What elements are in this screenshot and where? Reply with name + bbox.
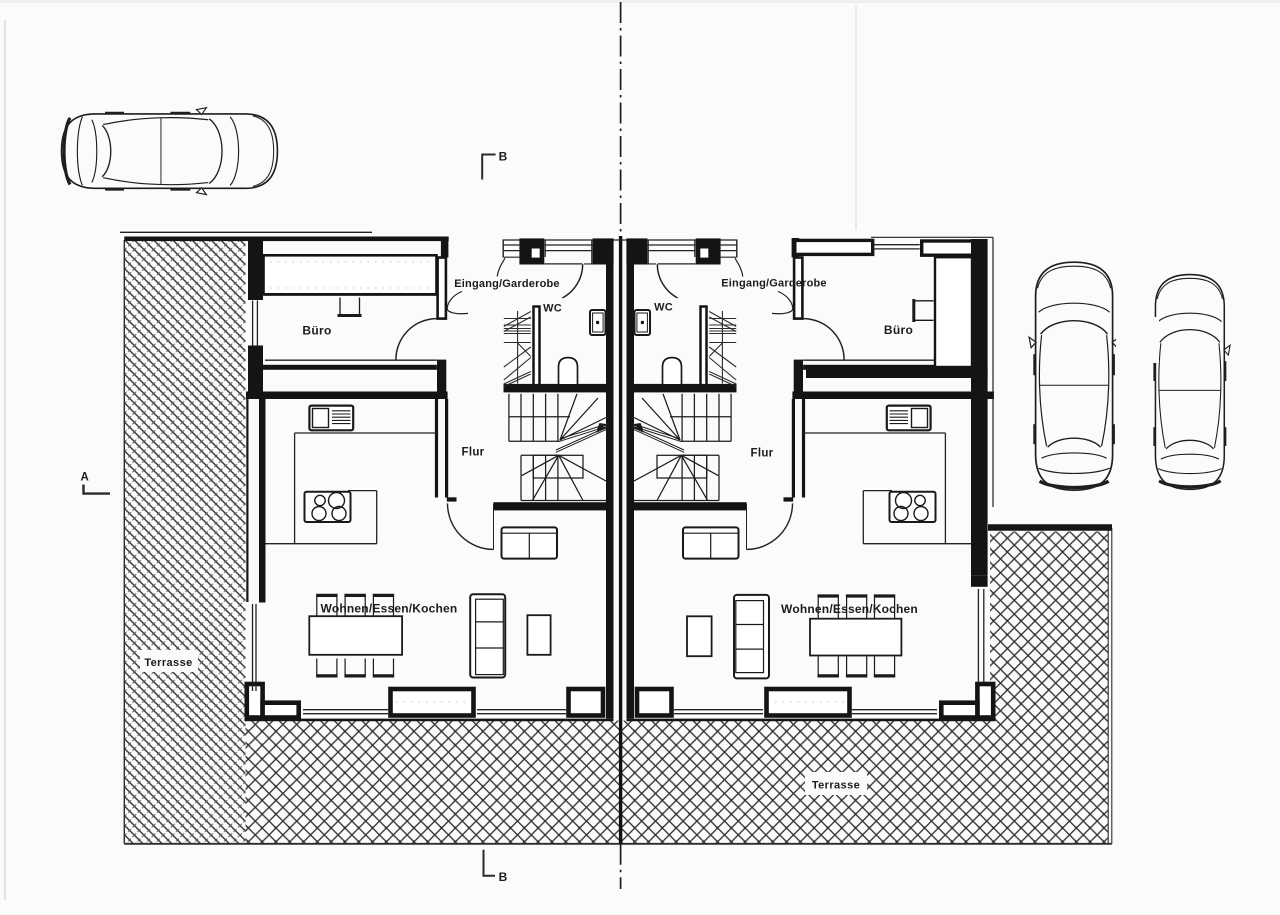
svg-text:Eingang/Garderobe: Eingang/Garderobe (454, 278, 559, 290)
svg-text:B: B (499, 870, 508, 884)
svg-text:Flur: Flur (751, 448, 774, 460)
svg-text:A: A (80, 472, 88, 484)
svg-text:Flur: Flur (462, 447, 485, 459)
svg-text:Terrasse: Terrasse (144, 657, 192, 669)
svg-text:Terrasse: Terrasse (812, 780, 860, 792)
svg-text:Wohnen/Essen/Kochen: Wohnen/Essen/Kochen (321, 602, 458, 616)
svg-text:WC: WC (543, 303, 562, 315)
svg-text:B: B (499, 150, 508, 164)
svg-text:Büro: Büro (884, 323, 913, 337)
svg-text:Wohnen/Essen/Kochen: Wohnen/Essen/Kochen (781, 602, 918, 616)
svg-text:WC: WC (654, 302, 673, 314)
svg-text:Eingang/Garderobe: Eingang/Garderobe (721, 278, 826, 290)
svg-text:Büro: Büro (302, 324, 331, 338)
